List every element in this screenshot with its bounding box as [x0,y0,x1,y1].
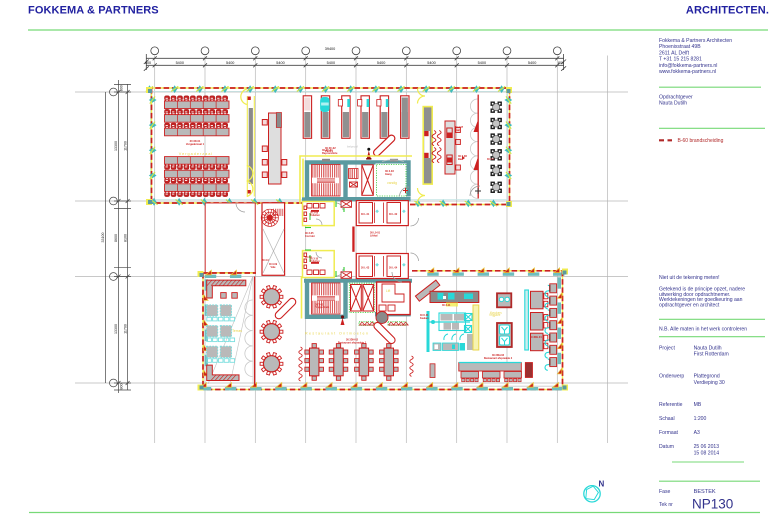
svg-text:Vergaderzaal 1: Vergaderzaal 1 [186,142,205,146]
svg-text:800: 800 [145,61,151,65]
svg-text:Tek nr: Tek nr [659,502,673,508]
svg-text:13300: 13300 [114,141,118,151]
svg-text:Lift: Lift [386,289,390,293]
svg-text:Trappenhuis: Trappenhuis [315,306,330,309]
svg-text:info@fokkema-partners.nl: info@fokkema-partners.nl [659,63,717,69]
svg-text:B-60 brandscheiding: B-60 brandscheiding [678,138,724,144]
svg-text:30 L-04: 30 L-04 [389,267,398,270]
svg-text:Keuken: Keuken [420,317,429,320]
svg-text:Restaurant afspraakte 2: Restaurant afspraakte 2 [484,357,513,360]
svg-text:800: 800 [558,61,564,65]
svg-text:11700: 11700 [123,324,127,334]
svg-text:vandig: vandig [387,181,397,185]
svg-text:5400: 5400 [327,61,335,65]
svg-text:30 3-0: 30 3-0 [262,259,269,262]
svg-text:Fase: Fase [659,489,670,495]
svg-text:Bar: Bar [458,157,462,161]
svg-text:30 L-03: 30 L-03 [361,267,370,270]
svg-text:Onderwerp: Onderwerp [659,374,684,380]
svg-text:1:200: 1:200 [694,416,707,422]
svg-text:5400: 5400 [377,61,385,65]
svg-text:BESTEK: BESTEK [694,489,716,495]
svg-text:Restaurant Ontmoeten: Restaurant Ontmoeten [305,332,369,336]
svg-text:Verdieping 30: Verdieping 30 [694,380,725,386]
svg-text:5400: 5400 [478,61,486,65]
svg-text:30 3-11: 30 3-11 [442,304,451,307]
svg-text:5400: 5400 [427,61,435,65]
svg-text:Zaal: Zaal [455,129,460,132]
svg-text:30 3-0: 30 3-0 [487,158,494,161]
svg-text:Phoenixstraat 49B: Phoenixstraat 49B [659,44,701,50]
svg-text:N: N [599,480,605,489]
svg-text:Opdrachtgever: Opdrachtgever [659,94,693,100]
svg-text:Formaat: Formaat [659,430,679,436]
svg-text:A3: A3 [694,430,700,436]
svg-text:11700: 11700 [123,141,127,151]
svg-text:ARCHITECTEN.: ARCHITECTEN. [686,5,769,17]
svg-text:33100: 33100 [101,233,105,243]
svg-text:25 06 2013: 25 06 2013 [694,444,720,450]
svg-text:5400: 5400 [276,61,284,65]
svg-text:NP130: NP130 [692,497,733,512]
svg-text:MB: MB [694,402,702,408]
svg-text:8100: 8100 [123,234,127,242]
svg-text:T +31 15 215 8281: T +31 15 215 8281 [659,57,702,63]
svg-text:Vrijgave: Vrijgave [489,313,501,317]
svg-text:belproof: belproof [347,145,358,149]
svg-text:15 08 2014: 15 08 2014 [694,450,720,456]
svg-text:First Rotterdam: First Rotterdam [694,352,729,358]
svg-text:Corridor: Corridor [305,235,315,238]
svg-text:Reproruimte: Reproruimte [322,151,338,155]
svg-text:800: 800 [120,85,124,91]
svg-text:FOKKEMA & PARTNERS: FOKKEMA & PARTNERS [28,5,159,17]
svg-text:2611 AL Delft: 2611 AL Delft [659,50,690,56]
svg-text:opdrachtgever en architect: opdrachtgever en architect [659,303,720,309]
svg-text:Fokkema & Partners Architecten: Fokkema & Partners Architecten [659,38,732,44]
svg-text:5400: 5400 [528,61,536,65]
svg-text:39400: 39400 [325,47,336,51]
svg-text:Datum: Datum [659,444,674,450]
svg-text:Nauta Dutilh: Nauta Dutilh [659,101,687,107]
svg-text:Toiletten: Toiletten [310,260,320,263]
svg-text:8600: 8600 [114,234,118,242]
svg-text:30 L-02: 30 L-02 [389,213,398,216]
svg-text:5400: 5400 [226,61,234,65]
svg-text:Nauta Dutilh: Nauta Dutilh [694,345,722,351]
svg-text:Gang: Gang [385,172,392,176]
svg-text:Project: Project [659,345,675,351]
svg-text:13300: 13300 [114,324,118,334]
svg-text:30 L-01: 30 L-01 [361,213,370,216]
svg-text:30 3DH-04: 30 3DH-04 [530,336,542,339]
svg-text:5400: 5400 [176,61,184,65]
svg-text:Plattegrond: Plattegrond [694,374,720,380]
svg-text:Terras: Terras [232,329,242,333]
svg-text:800: 800 [120,384,124,390]
svg-text:Referentie: Referentie [659,402,683,408]
svg-text:Vide: Vide [270,266,276,269]
svg-text:Toiletten: Toiletten [310,214,320,217]
svg-text:www.fokkema-partners.nl: www.fokkema-partners.nl [659,69,716,75]
svg-text:N.B. Alle maten in het werk co: N.B. Alle maten in het werk controleren [659,326,747,332]
svg-text:Schaal: Schaal [659,416,675,422]
svg-text:30 3-0: 30 3-0 [305,256,312,259]
svg-text:Vergaderzaal: Vergaderzaal [179,152,213,156]
svg-text:Lifthal: Lifthal [370,235,378,238]
svg-text:Niet uit de tekening meten!: Niet uit de tekening meten! [659,275,720,281]
